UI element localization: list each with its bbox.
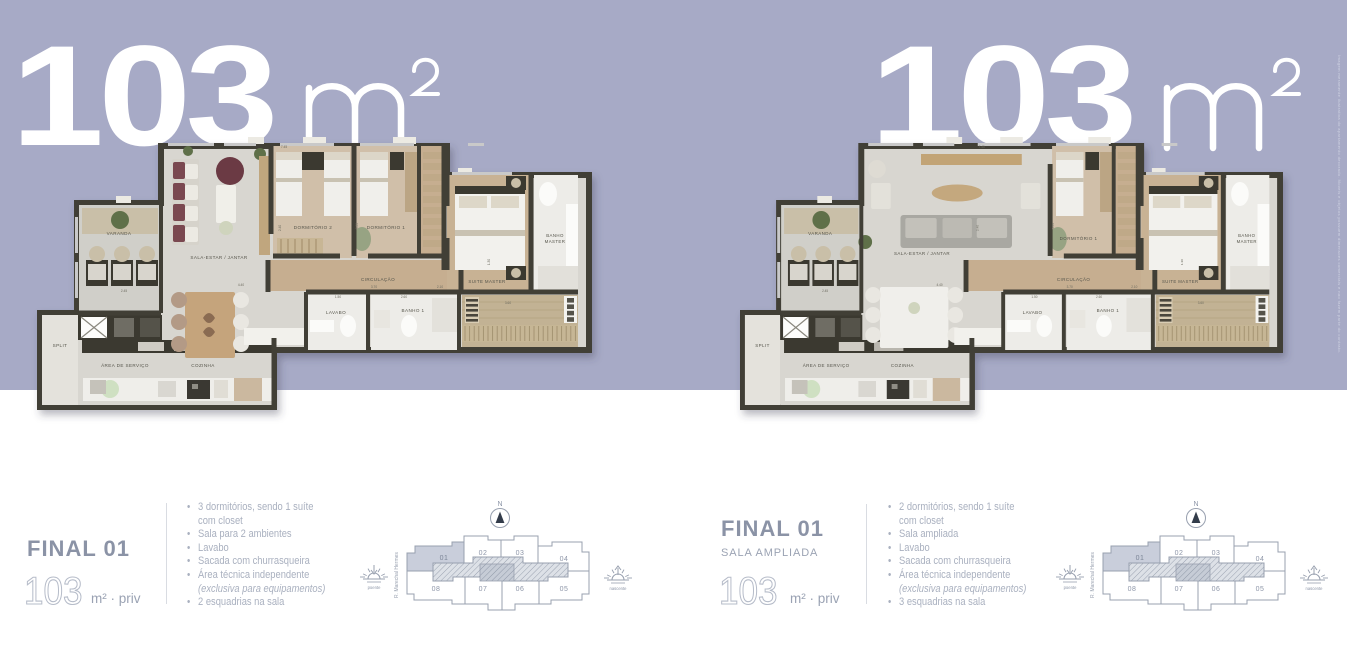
svg-text:7.45: 7.45 [979,145,985,149]
svg-text:05: 05 [1256,586,1265,593]
svg-text:BANHO: BANHO [1238,233,1255,238]
svg-text:SPLIT: SPLIT [755,343,769,348]
svg-text:N: N [1193,501,1198,508]
svg-text:3.60: 3.60 [1198,301,1204,305]
svg-text:3.55: 3.55 [355,223,359,229]
svg-text:2.10: 2.10 [437,285,443,289]
svg-text:CIRCULAÇÃO: CIRCULAÇÃO [361,276,395,282]
svg-text:CIRCULAÇÃO: CIRCULAÇÃO [1057,276,1090,282]
svg-text:SALA-ESTAR / JANTAR: SALA-ESTAR / JANTAR [894,251,950,256]
svg-text:DORMITÓRIO 1: DORMITÓRIO 1 [1060,235,1098,241]
svg-text:06: 06 [516,586,525,593]
svg-text:N: N [497,501,502,508]
svg-text:nascente: nascente [610,586,628,591]
svg-text:7.45: 7.45 [281,145,287,149]
svg-text:SALA-ESTAR / JANTAR: SALA-ESTAR / JANTAR [190,255,247,260]
svg-text:2.60: 2.60 [401,295,407,299]
svg-text:01: 01 [440,555,449,562]
svg-text:3.55: 3.55 [1051,223,1055,229]
svg-text:02: 02 [479,550,488,557]
svg-text:poente: poente [368,585,381,590]
svg-text:08: 08 [1128,586,1137,593]
svg-text:1.30: 1.30 [487,259,491,265]
svg-text:3.70: 3.70 [371,285,377,289]
svg-text:3.70: 3.70 [1067,285,1073,289]
svg-text:04: 04 [560,556,569,563]
svg-text:SUITE MASTER: SUITE MASTER [1162,279,1198,284]
svg-text:BANHO 1: BANHO 1 [1097,308,1120,313]
svg-text:nascente: nascente [1306,586,1324,591]
svg-text:VARANDA: VARANDA [107,231,132,236]
svg-text:DORMITÓRIO 1: DORMITÓRIO 1 [367,224,406,230]
svg-text:R. Marechal Hermes: R. Marechal Hermes [394,552,400,598]
svg-text:2.10: 2.10 [1131,285,1137,289]
svg-text:ÁREA DE SERVIÇO: ÁREA DE SERVIÇO [101,362,149,368]
svg-text:LAVABO: LAVABO [1023,310,1043,315]
svg-text:ÁREA DE SERVIÇO: ÁREA DE SERVIÇO [803,362,850,368]
svg-text:04: 04 [1256,556,1265,563]
svg-text:poente: poente [1064,585,1077,590]
svg-text:1.50: 1.50 [1031,295,1037,299]
svg-text:01: 01 [1136,555,1145,562]
svg-text:06: 06 [1212,586,1221,593]
svg-text:COZINHA: COZINHA [191,363,215,368]
svg-text:07: 07 [479,586,488,593]
svg-text:1.30: 1.30 [1180,259,1184,265]
svg-text:MASTER: MASTER [1237,239,1257,244]
svg-text:3.60: 3.60 [505,301,511,305]
svg-text:2.45: 2.45 [121,289,127,293]
svg-text:BANHO 1: BANHO 1 [402,308,425,313]
svg-text:07: 07 [1175,586,1184,593]
svg-text:4.40: 4.40 [937,283,943,287]
svg-text:2.40: 2.40 [976,225,980,231]
svg-text:VARANDA: VARANDA [808,231,833,236]
svg-text:1.50: 1.50 [335,295,341,299]
svg-text:03: 03 [516,550,525,557]
svg-text:LAVABO: LAVABO [326,310,346,315]
svg-text:2.45: 2.45 [822,289,828,293]
svg-text:COZINHA: COZINHA [891,363,915,368]
svg-text:SUITE MASTER: SUITE MASTER [468,279,505,284]
svg-text:02: 02 [1175,550,1184,557]
svg-text:03: 03 [1212,550,1221,557]
svg-text:R. Marechal Hermes: R. Marechal Hermes [1090,552,1096,598]
svg-text:DORMITÓRIO 2: DORMITÓRIO 2 [294,224,333,230]
svg-text:MASTER: MASTER [545,239,566,244]
svg-text:SPLIT: SPLIT [53,343,68,348]
svg-text:2.60: 2.60 [1096,295,1102,299]
svg-text:BANHO: BANHO [546,233,564,238]
svg-text:08: 08 [432,586,441,593]
svg-text:2.40: 2.40 [278,225,282,231]
svg-text:4.40: 4.40 [238,283,244,287]
svg-text:05: 05 [560,586,569,593]
